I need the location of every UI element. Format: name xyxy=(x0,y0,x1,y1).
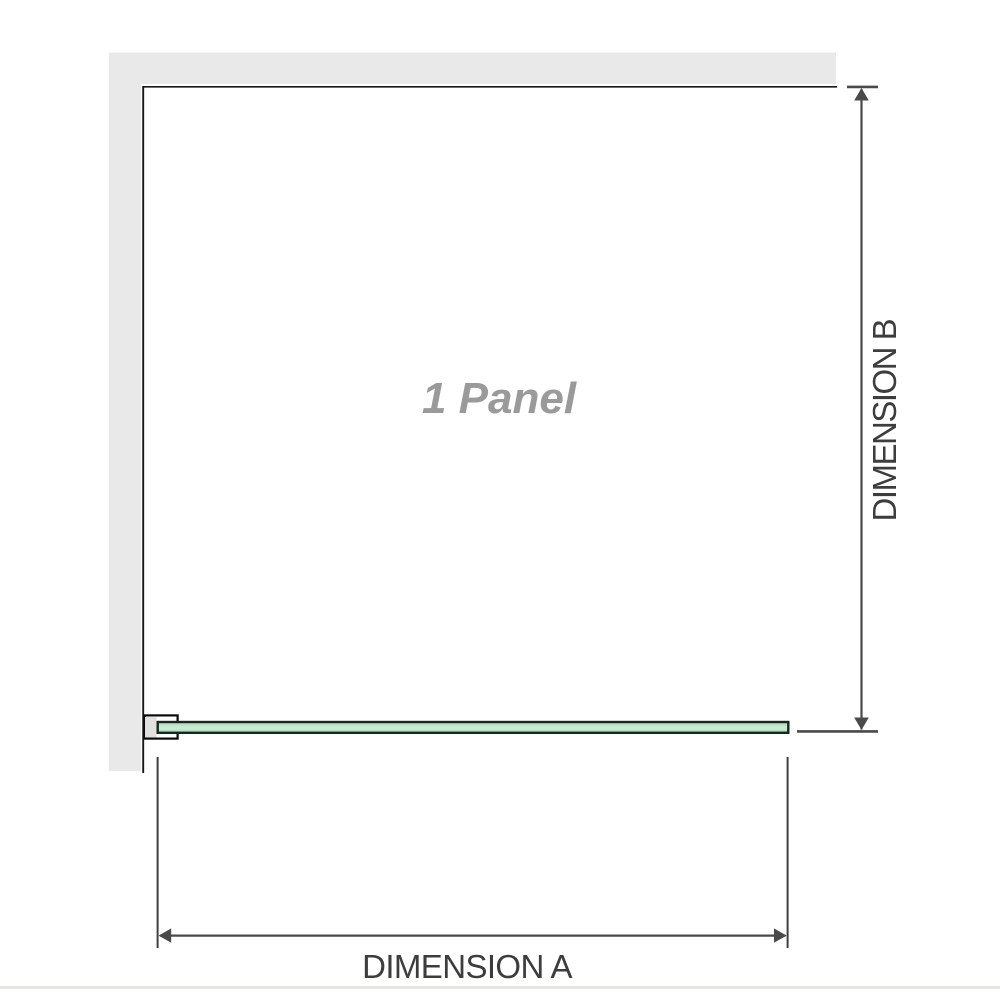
svg-text:1 Panel: 1 Panel xyxy=(422,374,577,423)
svg-text:DIMENSION B: DIMENSION B xyxy=(866,319,903,521)
svg-text:DIMENSION A: DIMENSION A xyxy=(362,948,572,985)
